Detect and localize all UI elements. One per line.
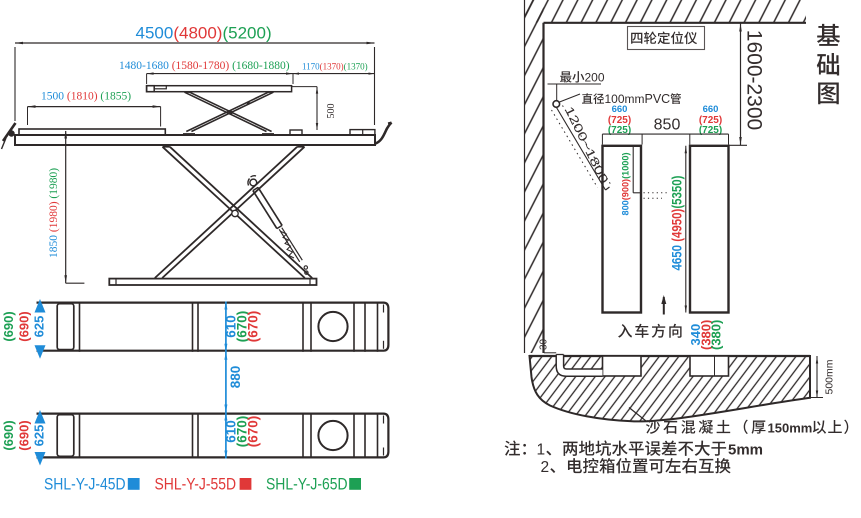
svg-text:4650 (4950)(5350): 4650 (4950)(5350)	[670, 176, 685, 271]
svg-text:SHL-Y-J-55D: SHL-Y-J-55D	[155, 476, 237, 494]
svg-text:1500 (1810) (1855): 1500 (1810) (1855)	[41, 91, 131, 103]
svg-text:800(900)(1000): 800(900)(1000)	[621, 153, 632, 216]
svg-text:1480-1680 (1580-1780) (1680-18: 1480-1680 (1580-1780) (1680-1880)	[119, 60, 290, 72]
svg-text:880: 880	[228, 366, 243, 389]
svg-text:(670): (670)	[246, 416, 261, 448]
svg-text:1: 1	[537, 442, 546, 459]
svg-text:850: 850	[654, 117, 681, 134]
svg-text:660: 660	[703, 104, 719, 115]
svg-text:625: 625	[32, 425, 47, 447]
svg-text:(380): (380)	[709, 320, 724, 350]
svg-text:150mm: 150mm	[768, 421, 813, 436]
svg-text:2: 2	[541, 459, 550, 476]
svg-text:SHL-Y-J-45D: SHL-Y-J-45D	[44, 476, 126, 494]
svg-text:1850 (1980) (1980): 1850 (1980) (1980)	[48, 168, 60, 258]
svg-text:PVC: PVC	[645, 92, 671, 106]
svg-text:200: 200	[585, 71, 605, 85]
svg-text:SHL-Y-J-65D: SHL-Y-J-65D	[266, 476, 348, 494]
svg-text:(690): (690)	[17, 311, 32, 341]
svg-text:4500(4800)(5200): 4500(4800)(5200)	[136, 24, 272, 43]
svg-text:30: 30	[539, 338, 550, 350]
svg-text:(690): (690)	[1, 311, 16, 341]
svg-text:(670): (670)	[246, 311, 261, 343]
svg-text:1600-2300: 1600-2300	[743, 30, 766, 130]
svg-text:660: 660	[612, 104, 628, 115]
svg-text:500: 500	[326, 104, 337, 119]
svg-text:(690): (690)	[17, 420, 32, 450]
svg-text:625: 625	[32, 316, 47, 338]
svg-text:500mm: 500mm	[824, 359, 836, 394]
svg-text:5mm: 5mm	[728, 442, 763, 459]
svg-text:1170(1370)(1370): 1170(1370)(1370)	[302, 62, 368, 72]
svg-text:(690): (690)	[1, 420, 16, 450]
